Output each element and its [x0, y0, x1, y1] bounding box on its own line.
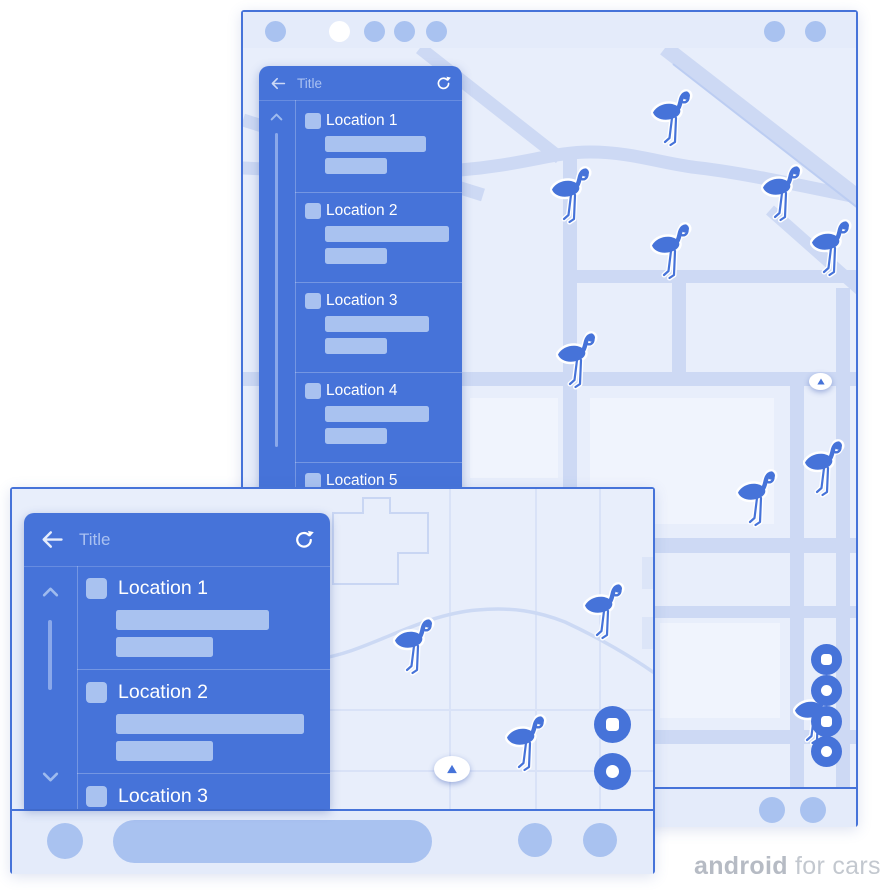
nav-button[interactable] [518, 823, 552, 857]
list-item[interactable]: Location 3 [77, 773, 330, 809]
place-icon [305, 383, 321, 399]
text-placeholder [325, 428, 387, 444]
chevron-up-icon[interactable] [42, 587, 59, 597]
text-placeholder [325, 248, 387, 264]
nav-button[interactable] [759, 797, 785, 823]
place-icon [305, 293, 321, 309]
logo-rest: for cars [788, 852, 881, 880]
item-title: Location 1 [118, 577, 208, 600]
landscape-nav-bar [12, 809, 653, 874]
text-placeholder [116, 714, 304, 734]
text-placeholder [325, 136, 426, 152]
map-action-button-circle[interactable] [811, 736, 842, 767]
triangle-up-icon [445, 763, 459, 775]
panel-header: Title [259, 66, 462, 101]
refresh-icon [294, 530, 314, 550]
panel-header: Title [24, 513, 330, 567]
item-title: Location 3 [326, 292, 398, 310]
nav-button[interactable] [583, 823, 617, 857]
nav-button[interactable] [800, 797, 826, 823]
flamingo-marker[interactable] [650, 219, 694, 281]
list-item[interactable]: Location 1 [77, 566, 330, 669]
item-title: Location 3 [118, 785, 208, 808]
chevron-down-icon[interactable] [42, 772, 59, 782]
flamingo-marker[interactable] [550, 163, 594, 225]
flamingo-marker[interactable] [556, 328, 600, 390]
status-dot [394, 21, 415, 42]
flamingo-marker[interactable] [393, 614, 437, 676]
circle-icon [606, 765, 619, 778]
scrollbar-indicator[interactable] [275, 133, 278, 447]
item-title: Location 4 [326, 382, 398, 400]
status-dot-active [329, 21, 350, 42]
list-item[interactable]: Location 2 [77, 669, 330, 773]
flamingo-marker[interactable] [803, 436, 847, 498]
square-icon [606, 718, 619, 731]
chevron-up-icon[interactable] [270, 113, 283, 121]
scroll-rail[interactable] [259, 100, 296, 548]
status-dot [805, 21, 826, 42]
list-item[interactable]: Location 1 [295, 103, 462, 192]
nav-button[interactable] [47, 823, 83, 859]
landscape-list-panel: Title Location 1 Location [24, 513, 330, 809]
landscape-screen: Title Location 1 Location [10, 487, 655, 874]
square-icon [821, 654, 832, 665]
logo-bold: android [694, 852, 788, 880]
map-action-button-circle[interactable] [811, 675, 842, 706]
circle-icon [821, 746, 832, 757]
map-action-button-square[interactable] [811, 644, 842, 675]
scroll-rail[interactable] [24, 566, 78, 809]
place-icon [86, 786, 107, 807]
location-list: Location 1 Location 2 Location 3 [295, 103, 462, 548]
portrait-list-panel: Title Location 1 Location 2 [259, 66, 462, 548]
android-for-cars-logo: android for cars [694, 852, 881, 881]
flamingo-marker[interactable] [651, 86, 695, 148]
place-icon [305, 203, 321, 219]
item-title: Location 2 [326, 202, 398, 220]
flamingo-marker[interactable] [505, 711, 549, 773]
refresh-icon [436, 76, 451, 91]
status-dot [426, 21, 447, 42]
compass-button[interactable] [809, 373, 832, 390]
text-placeholder [325, 406, 429, 422]
triangle-up-icon [816, 377, 826, 386]
text-placeholder [116, 610, 269, 630]
map-action-button-square[interactable] [811, 706, 842, 737]
text-placeholder [116, 637, 213, 657]
text-placeholder [325, 316, 429, 332]
item-title: Location 1 [326, 112, 398, 130]
nav-search-pill[interactable] [113, 820, 432, 863]
location-list: Location 1 Location 2 Location 3 [77, 566, 330, 809]
back-arrow-icon[interactable] [40, 530, 64, 549]
place-icon [86, 578, 107, 599]
scrollbar-indicator[interactable] [48, 620, 52, 690]
text-placeholder [325, 158, 387, 174]
item-title: Location 2 [118, 681, 208, 704]
flamingo-marker[interactable] [810, 216, 854, 278]
panel-title: Title [297, 76, 322, 91]
list-item[interactable]: Location 2 [295, 192, 462, 282]
text-placeholder [325, 338, 387, 354]
flamingo-marker[interactable] [583, 579, 627, 641]
map-action-button-square[interactable] [594, 706, 631, 743]
place-icon [86, 682, 107, 703]
flamingo-marker[interactable] [761, 161, 805, 223]
back-arrow-icon[interactable] [270, 77, 286, 90]
status-dot [764, 21, 785, 42]
text-placeholder [116, 741, 213, 761]
circle-icon [821, 685, 832, 696]
status-dot [265, 21, 286, 42]
list-item[interactable]: Location 4 [295, 372, 462, 462]
refresh-button[interactable] [294, 530, 314, 550]
map-action-button-circle[interactable] [594, 753, 631, 790]
list-item[interactable]: Location 3 [295, 282, 462, 372]
refresh-button[interactable] [436, 76, 451, 91]
square-icon [821, 716, 832, 727]
status-dot [364, 21, 385, 42]
place-icon [305, 113, 321, 129]
portrait-status-bar [243, 12, 856, 50]
flamingo-marker[interactable] [736, 466, 780, 528]
panel-title: Title [79, 530, 111, 550]
compass-button[interactable] [434, 756, 470, 782]
text-placeholder [325, 226, 449, 242]
design-canvas: Title Location 1 Location 2 [0, 0, 894, 890]
